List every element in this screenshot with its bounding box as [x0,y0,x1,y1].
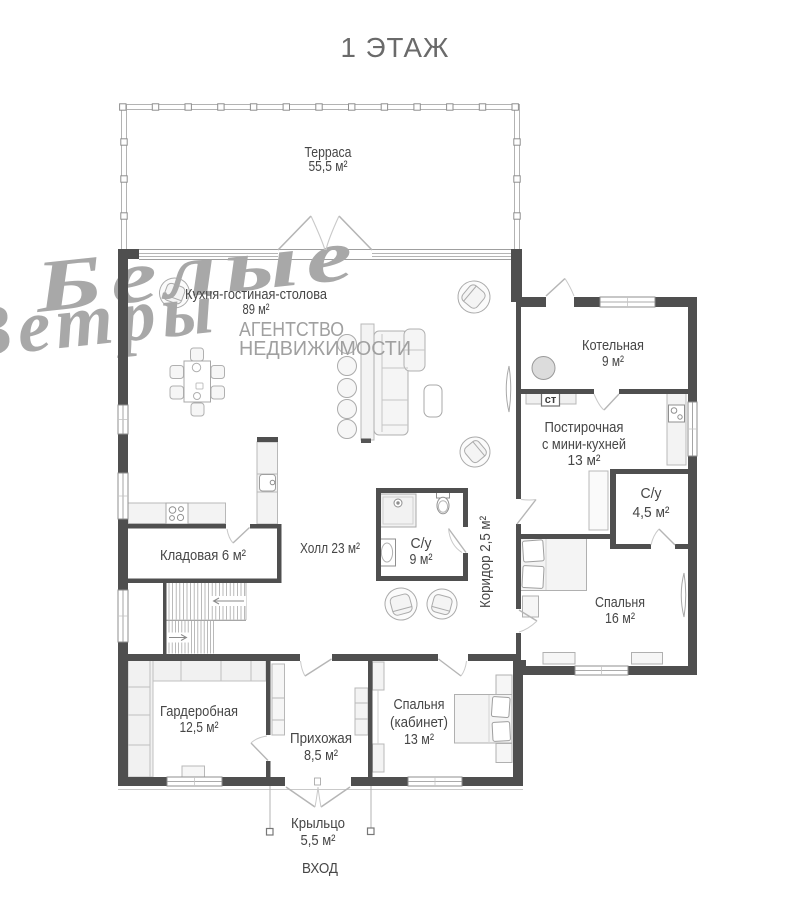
svg-text:Кладовая 6 м²: Кладовая 6 м² [160,547,246,564]
svg-text:1 ЭТАЖ: 1 ЭТАЖ [341,32,450,63]
svg-text:Гардеробная: Гардеробная [160,703,238,720]
svg-text:Прихожая: Прихожая [290,730,352,747]
svg-text:(кабинет): (кабинет) [390,714,448,731]
svg-text:НЕДВИЖИМОСТИ: НЕДВИЖИМОСТИ [239,338,411,360]
svg-text:ВХОД: ВХОД [302,860,338,877]
svg-text:13 м²: 13 м² [568,452,601,469]
svg-text:С/у: С/у [411,535,432,552]
svg-text:Крыльцо: Крыльцо [291,815,345,832]
svg-text:Спальня: Спальня [595,594,645,611]
svg-text:9 м²: 9 м² [410,551,433,568]
svg-text:ст: ст [545,394,557,406]
svg-text:С/у: С/у [641,485,662,502]
svg-text:5,5 м²: 5,5 м² [301,832,336,849]
svg-text:12,5 м²: 12,5 м² [180,719,219,736]
svg-text:4,5 м²: 4,5 м² [633,504,670,521]
svg-text:9 м²: 9 м² [602,353,624,370]
svg-text:с мини-кухней: с мини-кухней [542,436,626,453]
svg-text:89 м²: 89 м² [243,301,270,318]
svg-text:Постирочная: Постирочная [545,419,624,436]
svg-text:Холл 23 м²: Холл 23 м² [300,540,360,557]
svg-text:13 м²: 13 м² [404,731,434,748]
svg-text:8,5 м²: 8,5 м² [304,747,338,764]
svg-text:Котельная: Котельная [582,337,644,354]
svg-text:Коридор 2,5 м²: Коридор 2,5 м² [477,516,494,608]
svg-text:Спальня: Спальня [394,696,445,713]
svg-text:16 м²: 16 м² [605,610,635,627]
svg-text:55,5 м²: 55,5 м² [309,158,348,175]
